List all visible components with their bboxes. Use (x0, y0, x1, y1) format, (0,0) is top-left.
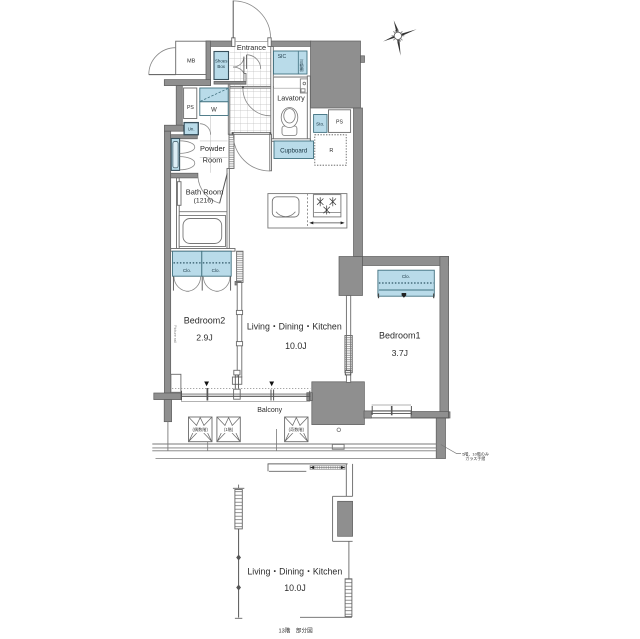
svg-text:Box: Box (217, 64, 225, 69)
svg-text:Picture rail: Picture rail (173, 325, 177, 343)
svg-text:PS: PS (187, 105, 194, 111)
svg-text:3.7J: 3.7J (392, 348, 408, 358)
svg-text:PS: PS (336, 120, 343, 126)
svg-text:W: W (211, 108, 217, 114)
svg-text:棚: 棚 (300, 67, 304, 72)
svg-text:2.9J: 2.9J (196, 332, 212, 342)
svg-text:ガラス手摺: ガラス手摺 (465, 455, 485, 461)
svg-text:Un.: Un. (188, 127, 195, 132)
svg-text:Bedroom2: Bedroom2 (184, 315, 226, 325)
svg-text:Bath Room: Bath Room (186, 187, 224, 196)
svg-text:10.0J: 10.0J (284, 583, 306, 593)
svg-text:Clo.: Clo. (402, 274, 410, 279)
svg-text:Clo.: Clo. (183, 268, 191, 273)
svg-text:Bedroom1: Bedroom1 (379, 331, 421, 341)
svg-text:Powder: Powder (200, 144, 226, 153)
svg-text:MB: MB (187, 59, 196, 65)
svg-text:Lavatory: Lavatory (277, 93, 305, 102)
svg-text:Entrance: Entrance (237, 43, 266, 52)
svg-text:Clo.: Clo. (212, 268, 220, 273)
svg-text:R: R (329, 148, 333, 154)
svg-text:Sto.: Sto. (316, 122, 324, 127)
svg-text:(1階): (1階) (224, 426, 234, 433)
svg-text:Shoes: Shoes (215, 59, 228, 64)
svg-text:(1216): (1216) (194, 197, 214, 204)
svg-text:(奇数階): (奇数階) (289, 426, 305, 433)
svg-text:SIC: SIC (278, 54, 287, 60)
svg-text:(偶数階): (偶数階) (193, 426, 209, 433)
svg-text:Room: Room (203, 155, 223, 164)
svg-text:Living・Dining・Kitchen: Living・Dining・Kitchen (247, 322, 342, 332)
svg-text:Balcony: Balcony (257, 407, 282, 414)
svg-text:13階 部分図: 13階 部分図 (278, 626, 313, 634)
svg-text:Cupboard: Cupboard (280, 147, 308, 154)
svg-text:10.0J: 10.0J (285, 341, 307, 351)
svg-text:Living・Dining・Kitchen: Living・Dining・Kitchen (247, 567, 342, 577)
